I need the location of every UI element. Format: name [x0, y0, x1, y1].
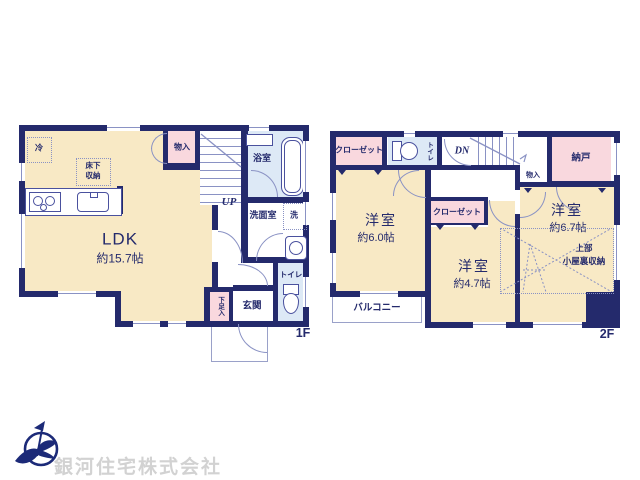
attic-label-1: 上部 [575, 244, 592, 254]
closet-monoire-2f-label: 物入 [526, 172, 540, 180]
nando-label: 納戸 [571, 154, 590, 165]
bath-counter [246, 134, 273, 146]
window [330, 193, 336, 220]
floorplan-image: 物入 UP 浴室 洗面室 洗 トイレ 玄関 下足入 [0, 0, 640, 480]
kitchen-sink [77, 192, 109, 212]
door-mark [436, 225, 444, 230]
room-west1-size: 約6.0帖 [357, 232, 394, 244]
window [19, 214, 25, 268]
window [303, 277, 309, 307]
ldk-size-label: 約15.7帖 [96, 252, 143, 265]
washroom-label: 洗面室 [249, 210, 276, 220]
attic-label-2: 小屋裏収納 [563, 257, 606, 267]
wall-segment [515, 182, 547, 187]
window [168, 321, 186, 327]
wall-segment [484, 197, 488, 225]
door-mark [471, 225, 479, 230]
window [107, 125, 140, 131]
underfloor-label-2: 収納 [86, 172, 101, 180]
shoe-closet-label: 下足入 [216, 296, 223, 316]
room-west3-label: 洋室 [551, 203, 583, 219]
bathtub [281, 137, 304, 196]
window [133, 321, 160, 327]
door-mark [374, 170, 382, 175]
genkan-label: 玄関 [242, 302, 261, 313]
ldk-label: LDK [102, 229, 138, 248]
toilet-2f-label: トイレ [425, 141, 432, 161]
door-mark [598, 188, 606, 193]
window [614, 143, 620, 175]
wall-segment [437, 137, 442, 165]
underfloor-label-1: 床下 [86, 162, 101, 170]
window [473, 322, 506, 328]
closet-monoire-1f-label: 物入 [174, 144, 190, 153]
floor-tag-1f: 1F [296, 326, 311, 340]
stairs-up-label: UP [222, 196, 237, 208]
window [303, 141, 309, 192]
wall-segment [229, 292, 233, 321]
window [360, 291, 398, 297]
laundry-label: 洗 [290, 212, 298, 221]
window [19, 163, 25, 181]
stairs-2f-diagonal [468, 135, 538, 167]
closet-2f-mid-label: クローゼット [433, 209, 481, 218]
room-west2-size: 約4.7帖 [453, 278, 490, 290]
room-west2-label: 洋室 [458, 259, 490, 275]
floor-tag-2f: 2F [600, 327, 615, 341]
outside-area [19, 297, 115, 367]
wall-corner-block [586, 292, 620, 324]
toilet-1f-label: トイレ [280, 271, 303, 279]
company-name-watermark: 銀河住宅株式会社 [54, 452, 222, 479]
stove [29, 192, 61, 212]
closet-2f-left-label: クローゼット [335, 147, 383, 156]
window [330, 253, 336, 283]
window [503, 131, 518, 137]
window [249, 125, 269, 131]
room-west1-label: 洋室 [365, 213, 397, 229]
window [58, 291, 96, 297]
window [404, 131, 415, 137]
bathroom-label: 浴室 [253, 153, 271, 163]
door-mark [338, 170, 346, 175]
toilet-bowl-2f [400, 142, 418, 160]
window [303, 202, 309, 225]
window [533, 322, 582, 328]
balcony-label: バルコニー [353, 304, 400, 315]
window [614, 225, 620, 280]
vanity-sink [285, 236, 307, 260]
fridge-label: 冷 [35, 145, 43, 154]
